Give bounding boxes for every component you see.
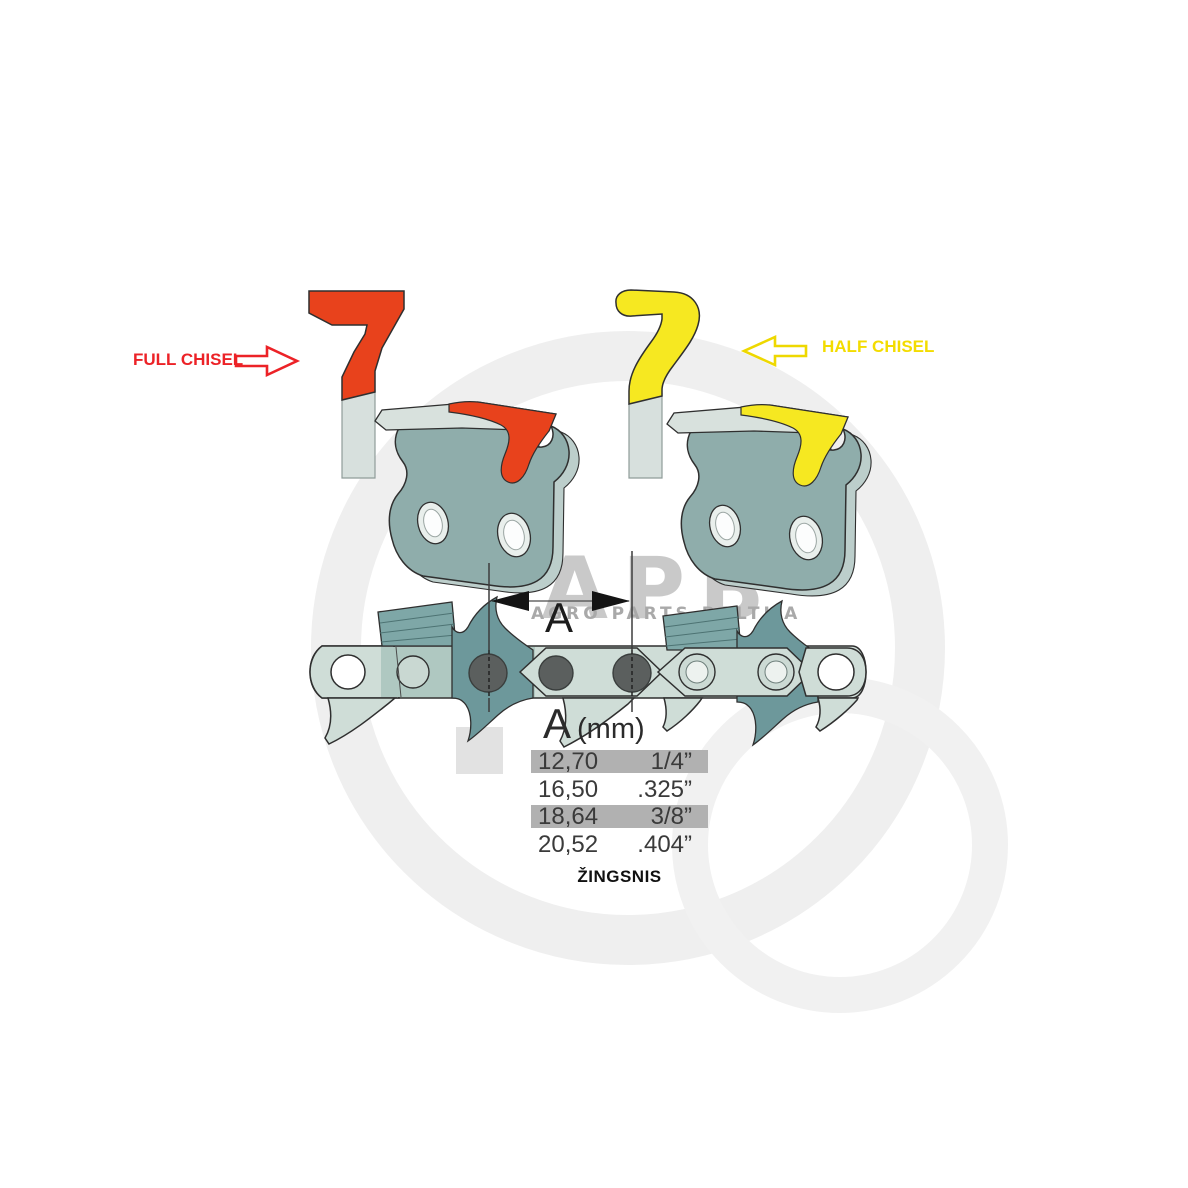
pitch-mm: 16,50 <box>531 778 598 801</box>
table-row: 16,50 .325” <box>531 778 708 801</box>
cutter-link-half-chisel <box>667 405 871 596</box>
pitch-mm: 12,70 <box>531 750 598 773</box>
full-chisel-profile-stem <box>342 390 375 478</box>
table-row: 20,52 .404” <box>531 833 708 856</box>
chain-hole-left <box>331 655 365 689</box>
pitch-caption: ŽINGSNIS <box>531 867 708 887</box>
full-chisel-profile-edge <box>309 291 404 400</box>
pitch-inch: .404” <box>637 833 708 856</box>
drive-link-1 <box>325 698 395 744</box>
dimension-arrow-left <box>491 591 529 611</box>
rivet-1 <box>469 654 507 692</box>
chain-hole-right <box>818 654 854 690</box>
half-chisel-profile <box>616 290 699 478</box>
rivet-2 <box>539 656 573 690</box>
drive-link-4 <box>816 698 858 731</box>
cutter-link-full-chisel <box>375 402 579 593</box>
chain-hole-ring-2-inner <box>765 661 787 683</box>
table-row: 12,70 1/4” <box>531 750 708 773</box>
chain-illustration <box>0 0 1188 1188</box>
pitch-table-header-symbol: A <box>543 700 571 747</box>
chain-hole-ring-1-inner <box>686 661 708 683</box>
dimension-letter: A <box>545 597 573 639</box>
pitch-table-header-unit: (mm) <box>577 713 645 745</box>
pitch-inch: 1/4” <box>651 750 708 773</box>
pitch-mm: 18,64 <box>531 805 598 828</box>
pitch-mm: 20,52 <box>531 833 598 856</box>
chain-hole-cutter <box>397 656 429 688</box>
pitch-table: A(mm) 12,70 1/4” 16,50 .325” 18,64 3/8” … <box>531 703 708 887</box>
table-row: 18,64 3/8” <box>531 805 708 828</box>
full-chisel-profile <box>309 291 404 478</box>
half-chisel-profile-edge <box>616 290 699 404</box>
dimension-arrow-right <box>592 591 630 611</box>
half-chisel-label: HALF CHISEL <box>822 337 934 357</box>
full-chisel-label: FULL CHISEL <box>133 350 243 370</box>
pitch-inch: .325” <box>637 778 708 801</box>
half-chisel-arrow-icon <box>744 337 806 365</box>
pitch-inch: 3/8” <box>651 805 708 828</box>
full-chisel-arrow-icon <box>236 347 297 375</box>
product-diagram: APB AGRO PARTS BALTIJA <box>0 0 1188 1188</box>
half-chisel-profile-stem <box>629 394 662 478</box>
pitch-table-header: A(mm) <box>531 703 708 746</box>
